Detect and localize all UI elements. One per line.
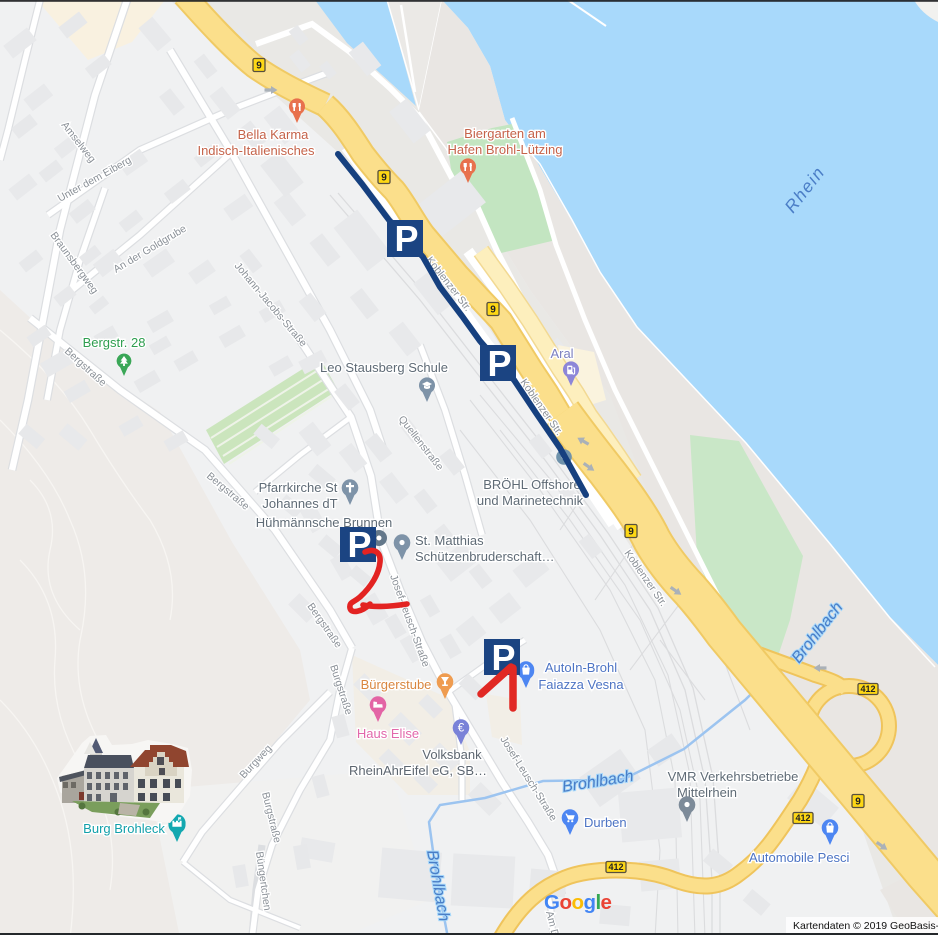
svg-text:Leo Stausberg Schule: Leo Stausberg Schule [320, 360, 448, 375]
svg-text:Automobile Pesci: Automobile Pesci [749, 850, 850, 865]
svg-text:P: P [488, 343, 512, 384]
svg-text:Indisch-Italienisches: Indisch-Italienisches [197, 143, 315, 158]
svg-text:412: 412 [608, 862, 623, 872]
svg-text:RheinAhrEifel eG, SB…: RheinAhrEifel eG, SB… [349, 763, 487, 778]
svg-text:und Marinetechnik: und Marinetechnik [477, 493, 584, 508]
svg-text:Bergstr. 28: Bergstr. 28 [83, 335, 146, 350]
svg-text:€: € [458, 723, 465, 735]
svg-text:St. Matthias: St. Matthias [415, 533, 484, 548]
svg-text:Johannes dT: Johannes dT [262, 496, 337, 511]
svg-text:9: 9 [628, 527, 634, 538]
svg-text:o: o [560, 891, 573, 914]
svg-text:Faiazza Vesna: Faiazza Vesna [538, 677, 624, 692]
svg-text:Hafen Brohl-Lützing: Hafen Brohl-Lützing [448, 142, 563, 157]
svg-text:Pfarrkirche St: Pfarrkirche St [259, 480, 338, 495]
svg-text:Schützenbruderschaft…: Schützenbruderschaft… [415, 549, 554, 564]
svg-text:Haus Elise: Haus Elise [357, 726, 419, 741]
svg-text:412: 412 [860, 684, 875, 694]
svg-text:AutoIn-Brohl: AutoIn-Brohl [545, 660, 617, 675]
svg-text:Kartendaten © 2019 GeoBasis-DE: Kartendaten © 2019 GeoBasis-DE/ [793, 920, 938, 932]
svg-text:VMR Verkehrsbetriebe: VMR Verkehrsbetriebe [668, 769, 799, 784]
svg-text:P: P [348, 524, 372, 565]
svg-text:9: 9 [855, 797, 861, 808]
svg-text:o: o [572, 891, 585, 914]
svg-text:9: 9 [490, 305, 496, 316]
svg-text:Bella Karma: Bella Karma [238, 127, 310, 142]
svg-text:g: g [584, 891, 597, 914]
svg-text:e: e [601, 891, 612, 914]
svg-text:Volksbank: Volksbank [422, 747, 482, 762]
svg-text:Bürgerstube: Bürgerstube [361, 677, 432, 692]
svg-text:BRÖHL Offshore: BRÖHL Offshore [483, 477, 581, 492]
svg-text:9: 9 [256, 61, 262, 72]
svg-text:9: 9 [381, 173, 387, 184]
svg-text:Biergarten am: Biergarten am [464, 126, 546, 141]
svg-text:412: 412 [795, 813, 810, 823]
svg-text:Durben: Durben [584, 815, 627, 830]
svg-text:Aral: Aral [550, 346, 573, 361]
svg-text:P: P [395, 218, 419, 259]
svg-text:Burg Brohleck: Burg Brohleck [83, 821, 165, 836]
svg-text:G: G [544, 891, 560, 914]
